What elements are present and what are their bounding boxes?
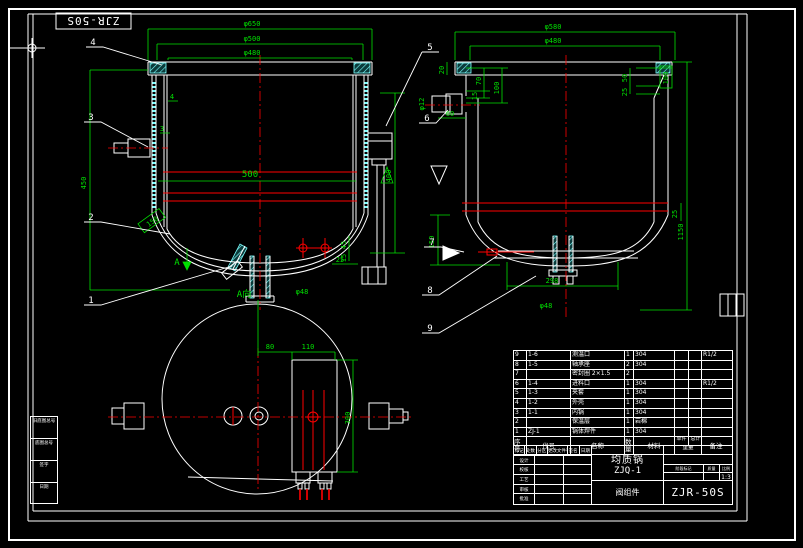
table-row: 91-6测温口1304R1/2	[514, 351, 732, 361]
cell-material: 304	[634, 351, 675, 360]
stage-value	[664, 473, 704, 480]
table-row: 51-3夹套1304	[514, 389, 732, 399]
margin-box: 日期	[30, 482, 58, 504]
tb-sign-cell: 审核	[514, 485, 535, 494]
cell-name: 保温层	[571, 418, 625, 427]
cell-remark	[702, 428, 730, 437]
dimension-label: 500	[242, 170, 258, 180]
cell-material: 304	[634, 399, 675, 408]
cell-total	[689, 428, 702, 437]
cell-total	[689, 370, 702, 379]
balloon-6[interactable]: 6	[424, 114, 429, 124]
tb-scale-row: 1:3	[664, 473, 732, 481]
tb-sign-row: 批准	[514, 494, 591, 504]
cell-total	[689, 399, 702, 408]
cad-sheet: { "colors": {"dim_green":"#00e000","line…	[0, 0, 803, 548]
tb-rev-cell: 分区	[537, 446, 548, 455]
parts-rows: 91-6测温口1304R1/281-5轴承座23047密封圈 2×1.5261-…	[514, 351, 732, 437]
side-view[interactable]: φ580 φ480 20 70 100 15 50 25 100 1150 15…	[418, 23, 744, 318]
dimension-label: 3	[160, 125, 164, 133]
view-arrow-label: A	[174, 258, 180, 268]
centerlines	[108, 348, 412, 500]
cell-material: 304	[634, 428, 675, 437]
cell-qty: 1	[625, 380, 634, 389]
vessel-outline	[114, 62, 447, 302]
front-view[interactable]: φ650 φ500 φ480 500 450 400 4 3 45 15 25 …	[80, 20, 447, 310]
tb-sign-row: 工艺	[514, 475, 591, 485]
dimension-label: 25	[621, 88, 629, 96]
cell-remark: R1/2	[702, 380, 730, 389]
dimension-label: 25	[671, 210, 679, 218]
cell-code: 1-3	[527, 389, 571, 398]
dimension-label: 298	[546, 277, 559, 285]
tb-sign-cell	[535, 456, 564, 465]
cell-total	[689, 389, 702, 398]
tb-rev-cell: 签名	[568, 446, 580, 455]
parts-list: 91-6测温口1304R1/281-5轴承座23047密封圈 2×1.5261-…	[513, 350, 733, 455]
cell-total	[689, 380, 702, 389]
tb-sign-row: 校核	[514, 465, 591, 475]
cell-material	[634, 370, 675, 379]
stage-label: 阶段标记	[664, 465, 704, 472]
balloon-4[interactable]: 4	[90, 38, 95, 48]
tb-sign-cell	[564, 494, 591, 504]
table-row: 2保温层1岩棉	[514, 418, 732, 428]
scale-label: 比例	[720, 465, 732, 472]
scale-value: 1:3	[720, 473, 732, 480]
tb-sign-cell	[564, 456, 591, 465]
cell-qty: 2	[625, 361, 634, 370]
cell-no: 4	[514, 399, 527, 408]
tb-rev-cell: 标记	[514, 446, 525, 455]
cell-no: 1	[514, 428, 527, 437]
cell-unit	[675, 389, 689, 398]
view-label: A向	[237, 288, 251, 300]
centerlines	[108, 55, 357, 310]
balloon-7[interactable]: 7	[429, 238, 434, 248]
cell-code: 1-2	[527, 399, 571, 408]
cell-no: 3	[514, 409, 527, 418]
cell-unit	[675, 428, 689, 437]
tb-sign-cell	[535, 485, 564, 494]
balloon-8[interactable]: 8	[427, 286, 432, 296]
bottom-view[interactable]: A向 80 110 300	[108, 288, 412, 500]
cell-remark	[702, 418, 730, 427]
part-name: 阀组件	[592, 481, 663, 504]
tb-rev-cell: 处数	[525, 446, 536, 455]
dimension-label: φ480	[244, 49, 261, 57]
cell-name: 锅体焊件	[571, 428, 625, 437]
cell-no: 2	[514, 418, 527, 427]
cell-qty: 1	[625, 389, 634, 398]
tb-sign-cell	[564, 485, 591, 494]
tb-sign-cell: 批准	[514, 494, 535, 504]
cell-remark	[702, 409, 730, 418]
dimension-label: 70	[475, 77, 483, 85]
tb-sign-cell: 工艺	[514, 475, 535, 484]
cell-code: 1-6	[527, 351, 571, 360]
dimension-label: 45	[340, 241, 348, 249]
dimension-label: φ48	[540, 302, 553, 310]
cell-material: 304	[634, 389, 675, 398]
cell-material: 304	[634, 409, 675, 418]
cell-total	[689, 409, 702, 418]
cell-name: 夹套	[571, 389, 625, 398]
margin-box: 签字	[30, 460, 58, 482]
dimension-label: 50	[621, 74, 629, 82]
tb-sign-cell	[564, 475, 591, 484]
cell-qty: 1	[625, 351, 634, 360]
cell-no: 8	[514, 361, 527, 370]
cell-qty: 1	[625, 428, 634, 437]
tb-sign-cell	[535, 494, 564, 504]
cell-name: 轴承座	[571, 361, 625, 370]
tb-sign-cell	[535, 475, 564, 484]
dimension-label: 100	[662, 72, 670, 85]
table-row: 81-5轴承座2304	[514, 361, 732, 371]
cell-unit	[675, 361, 689, 370]
dimension-label: φ12	[418, 98, 426, 111]
dimension-label: φ480	[545, 37, 562, 45]
cell-qty: 1	[625, 409, 634, 418]
table-row: 41-2外壳1304	[514, 399, 732, 409]
cell-code	[527, 370, 571, 379]
view-direction-arrow	[183, 262, 191, 270]
dimension-label: φ500	[244, 35, 261, 43]
cell-code: ZJ-1	[527, 428, 571, 437]
table-row: 7密封圈 2×1.52	[514, 370, 732, 380]
cell-remark	[702, 370, 730, 379]
dimension-label: 1150	[677, 224, 685, 241]
tb-sign-row: 设计	[514, 456, 591, 466]
cell-remark	[702, 361, 730, 370]
balloon-1[interactable]: 1	[88, 296, 93, 306]
product-name: 均质锅	[611, 451, 644, 466]
cell-unit	[675, 380, 689, 389]
tb-product-cell: 均质锅 ZJQ-1	[592, 446, 663, 481]
cell-material: 岩棉	[634, 418, 675, 427]
tb-left-grid: 标记处数分区更改文件号签名日期设计校核工艺审核批准	[514, 446, 592, 504]
tb-sign-cell	[564, 465, 591, 474]
cell-no: 7	[514, 370, 527, 379]
dimension-label: 400	[385, 170, 393, 183]
view-outline	[112, 304, 408, 494]
drawing-number: ZJR-50S	[664, 481, 732, 504]
cell-code: 1-5	[527, 361, 571, 370]
cell-code: 1-4	[527, 380, 571, 389]
tb-right: 阶段标记 质量 比例 1:3 ZJR-50S	[664, 446, 732, 504]
dimension-label: 20	[438, 66, 446, 74]
dimension-lines	[258, 300, 358, 472]
margin-box: 底图总号	[30, 438, 58, 460]
tb-rev-cell: 更改文件号	[548, 446, 568, 455]
cell-total	[689, 351, 702, 360]
table-row: 1ZJ-1锅体焊件1304	[514, 428, 732, 438]
cell-unit	[675, 409, 689, 418]
tb-rev-header-row: 标记处数分区更改文件号签名日期	[514, 446, 591, 456]
cell-remark	[702, 399, 730, 408]
cell-code	[527, 418, 571, 427]
cell-qty: 2	[625, 370, 634, 379]
cell-code: 1-1	[527, 409, 571, 418]
dimension-label: 4	[170, 93, 174, 101]
tb-sign-cell: 校核	[514, 465, 535, 474]
balloon-5[interactable]: 5	[427, 43, 432, 53]
tb-sign-cell	[535, 465, 564, 474]
balloon-9[interactable]: 9	[427, 324, 432, 334]
cell-name: 密封圈 2×1.5	[571, 370, 625, 379]
cell-remark: R1/2	[702, 351, 730, 360]
cell-name: 进料口	[571, 380, 625, 389]
dimension-label: 25	[336, 256, 344, 264]
cell-no: 9	[514, 351, 527, 360]
cell-material: 304	[634, 361, 675, 370]
tb-rev-cell: 日期	[580, 446, 591, 455]
cell-unit	[675, 351, 689, 360]
cell-total	[689, 418, 702, 427]
balloon-2[interactable]: 2	[88, 213, 93, 223]
dimension-label: 80	[266, 343, 274, 351]
cell-total	[689, 361, 702, 370]
dimension-label: 300	[344, 412, 352, 425]
table-row: 61-4进料口1304R1/2	[514, 380, 732, 390]
tb-empty-cell	[664, 446, 732, 465]
dimension-label: φ650	[244, 20, 261, 28]
cell-qty: 1	[625, 418, 634, 427]
title-block: 标记处数分区更改文件号签名日期设计校核工艺审核批准 均质锅 ZJQ-1 阀组件 …	[513, 445, 733, 505]
cell-unit	[675, 370, 689, 379]
cell-name: 测温口	[571, 351, 625, 360]
cell-unit	[675, 418, 689, 427]
cell-qty: 1	[625, 399, 634, 408]
tb-stage-row: 阶段标记 质量 比例	[664, 465, 732, 473]
dimension-lines	[430, 32, 692, 310]
dimension-label: 15	[471, 92, 479, 100]
margin-box: 旧底图总号	[30, 416, 58, 438]
cell-no: 6	[514, 380, 527, 389]
dimension-label: φ580	[545, 23, 562, 31]
cell-no: 5	[514, 389, 527, 398]
cell-material: 304	[634, 380, 675, 389]
dimension-label: φ48	[296, 288, 309, 296]
cell-name: 内锅	[571, 409, 625, 418]
product-model: ZJQ-1	[614, 466, 641, 476]
dimension-label: 110	[302, 343, 315, 351]
cell-name: 外壳	[571, 399, 625, 408]
dimension-label: 450	[80, 177, 88, 190]
tb-sign-cell: 设计	[514, 456, 535, 465]
cell-unit	[675, 399, 689, 408]
tb-sign-row: 审核	[514, 485, 591, 495]
corner-label: ZJR-50S	[66, 14, 119, 27]
mass-value	[704, 473, 720, 480]
mass-label: 质量	[704, 465, 720, 472]
surface-finish-symbol	[431, 166, 447, 184]
cell-remark	[702, 389, 730, 398]
balloon-3[interactable]: 3	[88, 113, 93, 123]
dimension-label: 100	[493, 82, 501, 95]
tb-center: 均质锅 ZJQ-1 阀组件	[592, 446, 664, 504]
table-row: 31-1内锅1304	[514, 409, 732, 419]
margin-boxes: 旧底图总号底图总号签字日期	[30, 416, 58, 504]
